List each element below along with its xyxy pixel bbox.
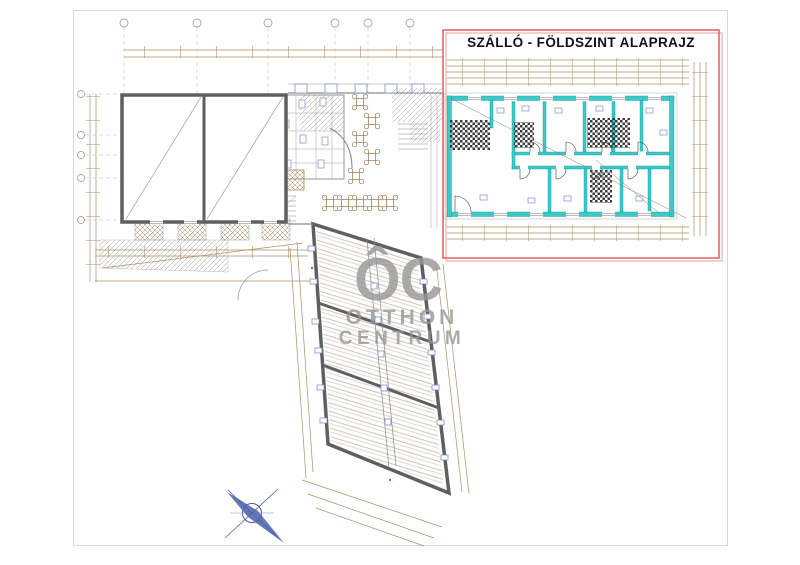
watermark-line2: CENTRUM — [339, 328, 466, 349]
teal-ground-floor — [444, 93, 686, 219]
floorplan-drawing: SZÁLLÓ - FÖLDSZINT ALAPRAJZ ÔC OTTHON CE… — [0, 0, 800, 565]
grid-lines-top — [124, 27, 410, 93]
plan-title: SZÁLLÓ - FÖLDSZINT ALAPRAJZ — [467, 35, 695, 50]
left-building — [122, 95, 286, 225]
watermark-line1: OTTHON — [346, 306, 459, 329]
north-arrow-icon — [225, 489, 284, 543]
grid-markers-left — [78, 91, 85, 224]
floorplan-page: SZÁLLÓ - FÖLDSZINT ALAPRAJZ ÔC OTTHON CE… — [0, 0, 800, 565]
watermark-monogram: ÔC — [354, 246, 442, 313]
terrace — [100, 219, 303, 300]
grid-markers-top — [120, 19, 414, 27]
